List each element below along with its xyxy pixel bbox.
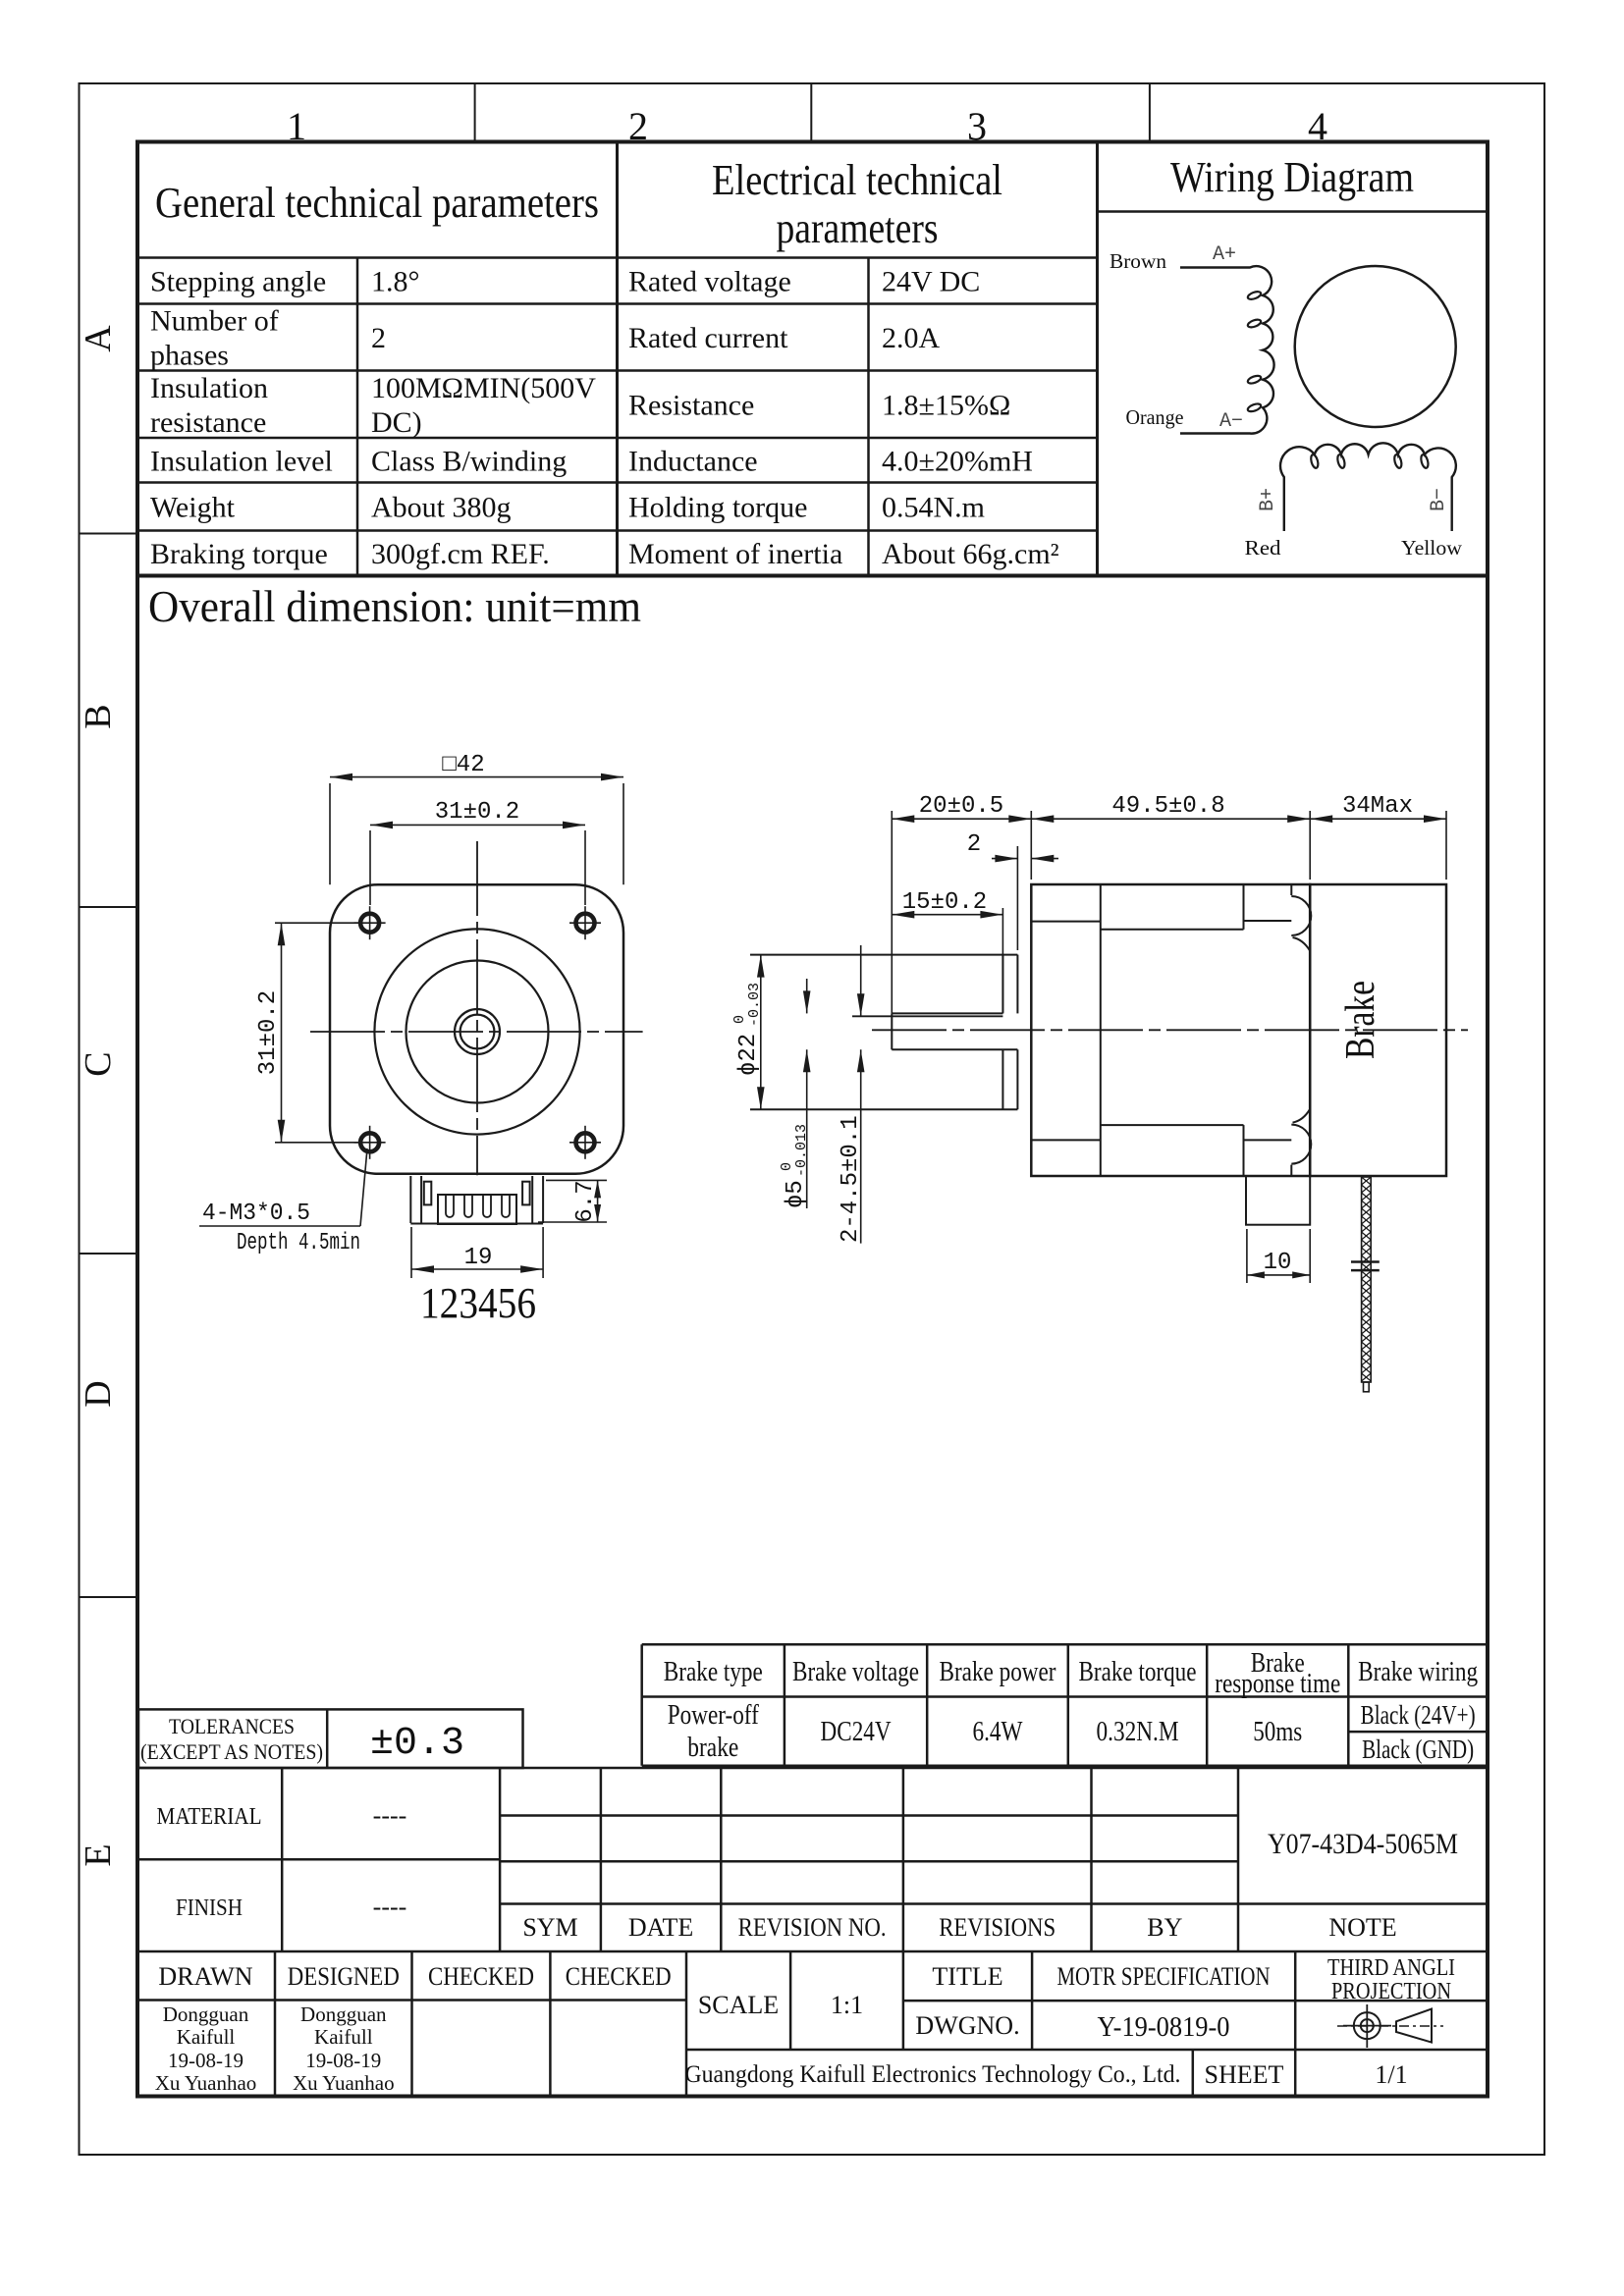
svg-text:B+: B+ xyxy=(1257,488,1279,511)
svg-text:DWGNO.: DWGNO. xyxy=(915,2011,1019,2040)
svg-text:-0.013: -0.013 xyxy=(793,1124,810,1177)
svg-text:B−: B− xyxy=(1428,488,1450,511)
svg-text:-0.03: -0.03 xyxy=(746,983,763,1027)
svg-text:Orange: Orange xyxy=(1126,405,1184,429)
svg-text:brake: brake xyxy=(687,1732,738,1763)
svg-text:DATE: DATE xyxy=(628,1913,693,1942)
svg-text:E: E xyxy=(78,1843,119,1866)
svg-text:response time: response time xyxy=(1215,1668,1340,1699)
svg-text:DRAWN: DRAWN xyxy=(158,1962,252,1991)
svg-text:parameters: parameters xyxy=(777,204,939,252)
svg-text:2: 2 xyxy=(967,831,981,858)
svg-text:A: A xyxy=(78,325,119,352)
svg-text:Stepping angle: Stepping angle xyxy=(150,266,326,298)
svg-text:1.8°: 1.8° xyxy=(371,266,420,298)
svg-text:Y07-43D4-5065M: Y07-43D4-5065M xyxy=(1268,1828,1458,1860)
svg-text:Y-19-0819-0: Y-19-0819-0 xyxy=(1098,2012,1230,2043)
svg-text:SCALE: SCALE xyxy=(698,1991,779,2019)
svg-text:----: ---- xyxy=(373,1893,407,1921)
svg-text:49.5±0.8: 49.5±0.8 xyxy=(1111,793,1224,820)
svg-text:Class B/winding: Class B/winding xyxy=(371,445,567,477)
svg-text:Weight: Weight xyxy=(150,492,236,524)
svg-text:0.54N.m: 0.54N.m xyxy=(882,492,985,524)
svg-text:Overall dimension: unit=mm: Overall dimension: unit=mm xyxy=(148,581,641,631)
svg-text:Kaifull: Kaifull xyxy=(314,2025,373,2049)
svg-text:REVISION NO.: REVISION NO. xyxy=(738,1913,887,1942)
svg-text:50ms: 50ms xyxy=(1253,1716,1302,1747)
svg-text:Brown: Brown xyxy=(1110,249,1167,273)
svg-text:A+: A+ xyxy=(1213,243,1236,266)
svg-text:31±0.2: 31±0.2 xyxy=(255,990,282,1075)
svg-text:DC): DC) xyxy=(371,406,422,439)
svg-text:CHECKED: CHECKED xyxy=(566,1962,672,1991)
svg-text:ϕ22: ϕ22 xyxy=(735,1034,762,1076)
svg-text:Brake power: Brake power xyxy=(940,1656,1056,1687)
svg-text:resistance: resistance xyxy=(150,406,266,439)
svg-text:Moment of inertia: Moment of inertia xyxy=(628,538,842,570)
svg-text:10: 10 xyxy=(1264,1250,1292,1276)
svg-text:REVISIONS: REVISIONS xyxy=(939,1913,1056,1942)
svg-text:Dongguan: Dongguan xyxy=(300,2002,387,2026)
svg-text:19-08-19: 19-08-19 xyxy=(168,2049,244,2072)
svg-text:SHEET: SHEET xyxy=(1205,2060,1284,2089)
svg-text:NOTE: NOTE xyxy=(1328,1913,1396,1942)
svg-text:±0.3: ±0.3 xyxy=(370,1722,464,1766)
svg-text:Yellow: Yellow xyxy=(1401,536,1463,560)
svg-text:Inductance: Inductance xyxy=(628,445,758,477)
svg-text:D: D xyxy=(78,1380,119,1407)
svg-text:General technical parameters: General technical parameters xyxy=(155,179,599,227)
svg-text:15±0.2: 15±0.2 xyxy=(902,889,987,916)
svg-text:Xu Yuanhao: Xu Yuanhao xyxy=(293,2071,395,2095)
svg-text:34Max: 34Max xyxy=(1342,793,1413,820)
svg-text:6.7: 6.7 xyxy=(572,1180,599,1222)
svg-text:Brake voltage: Brake voltage xyxy=(792,1656,919,1687)
svg-text:□42: □42 xyxy=(442,752,484,778)
svg-text:Number of: Number of xyxy=(150,305,279,338)
svg-text:Brake torque: Brake torque xyxy=(1079,1656,1197,1687)
svg-text:ϕ5: ϕ5 xyxy=(783,1180,809,1208)
svg-text:Black (24V+): Black (24V+) xyxy=(1361,1700,1476,1730)
svg-text:DESIGNED: DESIGNED xyxy=(288,1962,400,1991)
svg-text:Insulation: Insulation xyxy=(150,372,268,404)
svg-text:PROJECTION: PROJECTION xyxy=(1331,1979,1451,2004)
svg-text:Guangdong Kaifull Electronics: Guangdong Kaifull Electronics Technology… xyxy=(685,2061,1181,2088)
svg-text:6.4W: 6.4W xyxy=(973,1716,1024,1747)
svg-text:2-4.5±0.1: 2-4.5±0.1 xyxy=(838,1115,864,1243)
svg-text:Red: Red xyxy=(1245,536,1282,560)
svg-text:19: 19 xyxy=(464,1245,493,1271)
svg-text:19-08-19: 19-08-19 xyxy=(305,2049,381,2072)
svg-text:0.32N.M: 0.32N.M xyxy=(1097,1716,1179,1747)
svg-text:Brake wiring: Brake wiring xyxy=(1358,1656,1478,1687)
svg-text:TITLE: TITLE xyxy=(932,1962,1002,1991)
svg-text:C: C xyxy=(78,1051,119,1076)
svg-text:20±0.5: 20±0.5 xyxy=(919,793,1003,820)
svg-text:Insulation level: Insulation level xyxy=(150,445,333,477)
svg-text:Brake type: Brake type xyxy=(664,1656,763,1687)
svg-text:----: ---- xyxy=(373,1801,407,1830)
svg-text:Black (GND): Black (GND) xyxy=(1362,1735,1474,1764)
svg-text:About 380g: About 380g xyxy=(371,492,512,524)
svg-text:MATERIAL: MATERIAL xyxy=(157,1804,262,1830)
svg-text:Xu Yuanhao: Xu Yuanhao xyxy=(155,2071,257,2095)
svg-text:SYM: SYM xyxy=(522,1913,577,1942)
svg-text:1:1: 1:1 xyxy=(831,1991,863,2019)
svg-text:Kaifull: Kaifull xyxy=(177,2025,236,2049)
svg-text:Wiring Diagram: Wiring Diagram xyxy=(1170,153,1414,201)
svg-text:TOLERANCES: TOLERANCES xyxy=(169,1714,295,1738)
svg-text:2: 2 xyxy=(371,322,386,354)
svg-text:FINISH: FINISH xyxy=(176,1896,243,1921)
svg-text:Resistance: Resistance xyxy=(628,389,754,421)
svg-text:1.8±15%Ω: 1.8±15%Ω xyxy=(882,389,1010,421)
svg-text:1/1: 1/1 xyxy=(1375,2060,1407,2089)
svg-text:31±0.2: 31±0.2 xyxy=(435,799,519,826)
svg-text:DC24V: DC24V xyxy=(821,1716,892,1747)
svg-text:BY: BY xyxy=(1147,1913,1182,1942)
svg-text:Brake: Brake xyxy=(1338,981,1383,1059)
svg-text:A−: A− xyxy=(1219,410,1243,433)
svg-text:300gf.cm REF.: 300gf.cm REF. xyxy=(371,538,550,570)
svg-text:Electrical technical: Electrical technical xyxy=(712,156,1002,204)
svg-text:About 66g.cm²: About 66g.cm² xyxy=(882,538,1059,570)
svg-text:4.0±20%mH: 4.0±20%mH xyxy=(882,445,1033,477)
svg-text:CHECKED: CHECKED xyxy=(428,1962,534,1991)
svg-text:phases: phases xyxy=(150,340,229,372)
svg-text:Holding torque: Holding torque xyxy=(628,492,807,524)
svg-text:B: B xyxy=(78,704,119,728)
svg-text:Rated voltage: Rated voltage xyxy=(628,266,791,298)
svg-text:24V DC: 24V DC xyxy=(882,266,980,298)
svg-text:MOTR SPECIFICATION: MOTR SPECIFICATION xyxy=(1057,1962,1271,1991)
svg-text:(EXCEPT AS NOTES): (EXCEPT AS NOTES) xyxy=(140,1739,323,1764)
svg-text:123456: 123456 xyxy=(420,1279,536,1327)
svg-text:Depth 4.5min: Depth 4.5min xyxy=(237,1230,360,1256)
svg-text:Rated current: Rated current xyxy=(628,322,788,354)
svg-text:THIRD ANGLI: THIRD ANGLI xyxy=(1327,1955,1455,1981)
svg-text:Dongguan: Dongguan xyxy=(163,2002,249,2026)
svg-text:Braking torque: Braking torque xyxy=(150,538,328,570)
svg-text:2.0A: 2.0A xyxy=(882,322,941,354)
svg-text:100MΩMIN(500V: 100MΩMIN(500V xyxy=(371,372,596,404)
svg-text:4-M3*0.5: 4-M3*0.5 xyxy=(202,1201,310,1227)
svg-text:Power-off: Power-off xyxy=(668,1699,759,1731)
